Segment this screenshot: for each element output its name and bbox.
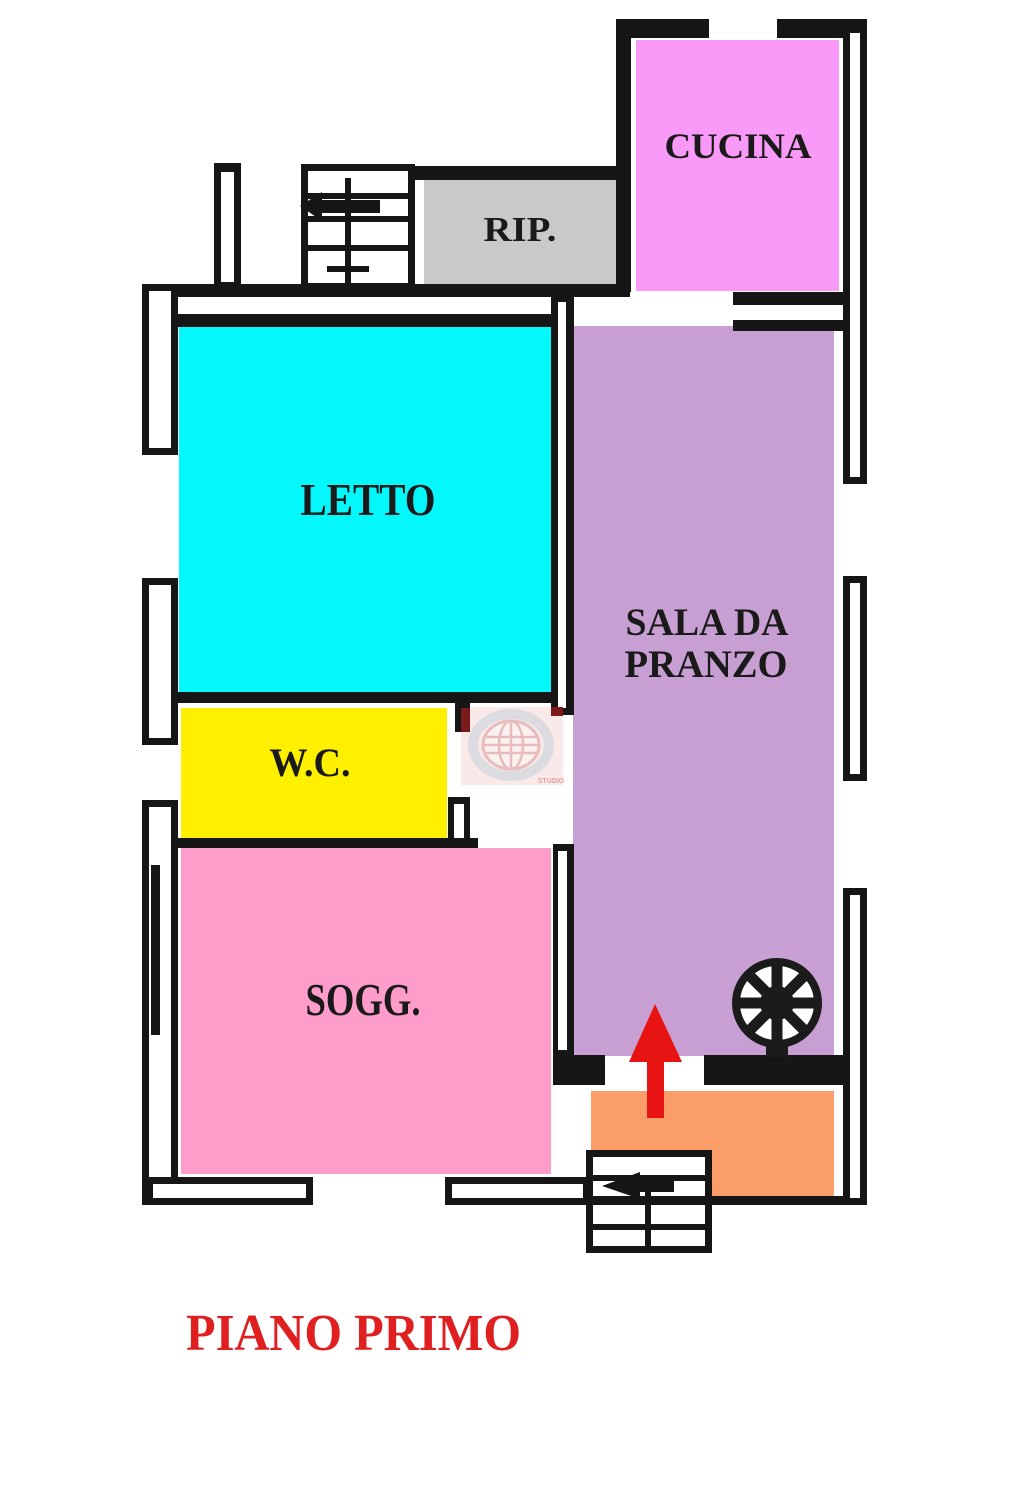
svg-text:RIP.: RIP.	[484, 210, 557, 249]
svg-text:LETTO: LETTO	[301, 475, 436, 525]
svg-text:PRANZO: PRANZO	[625, 643, 788, 686]
svg-text:SALA DA: SALA DA	[626, 601, 789, 644]
svg-text:CUCINA: CUCINA	[665, 126, 812, 166]
svg-text:W.C.: W.C.	[270, 740, 351, 785]
svg-text:PIANO PRIMO: PIANO PRIMO	[186, 1305, 521, 1362]
svg-text:SOGG.: SOGG.	[306, 975, 421, 1025]
svg-text:STUDIO: STUDIO	[538, 778, 565, 785]
